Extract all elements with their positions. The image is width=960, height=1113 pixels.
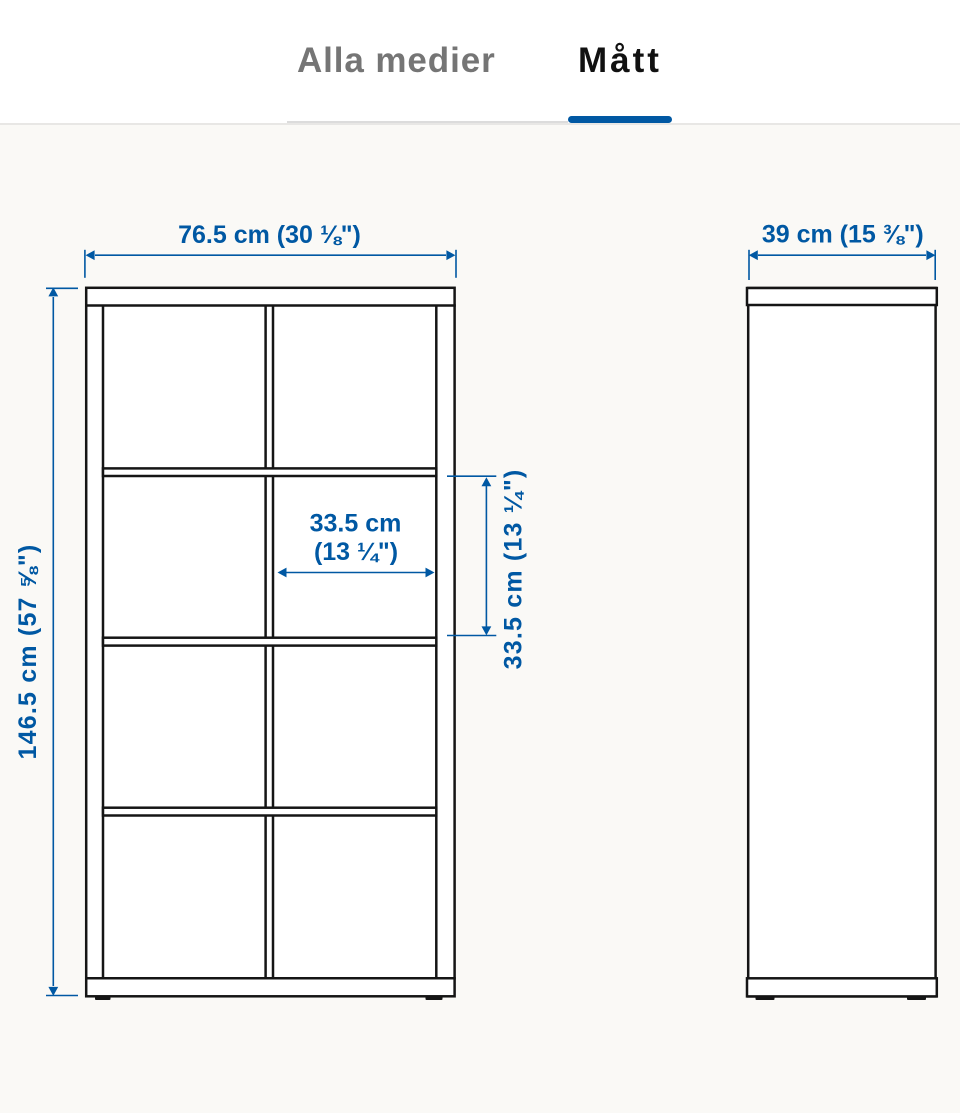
- svg-text:76.5 cm (30 ⅛"): 76.5 cm (30 ⅛"): [178, 221, 361, 249]
- svg-text:33.5 cm (13 ¼"): 33.5 cm (13 ¼"): [500, 469, 528, 670]
- svg-text:(13 ¼"): (13 ¼"): [314, 538, 398, 566]
- svg-text:33.5 cm: 33.5 cm: [310, 510, 402, 538]
- svg-text:146.5 cm (57 ⅝"): 146.5 cm (57 ⅝"): [14, 544, 42, 760]
- svg-text:39 cm (15 ⅜"): 39 cm (15 ⅜"): [762, 221, 924, 249]
